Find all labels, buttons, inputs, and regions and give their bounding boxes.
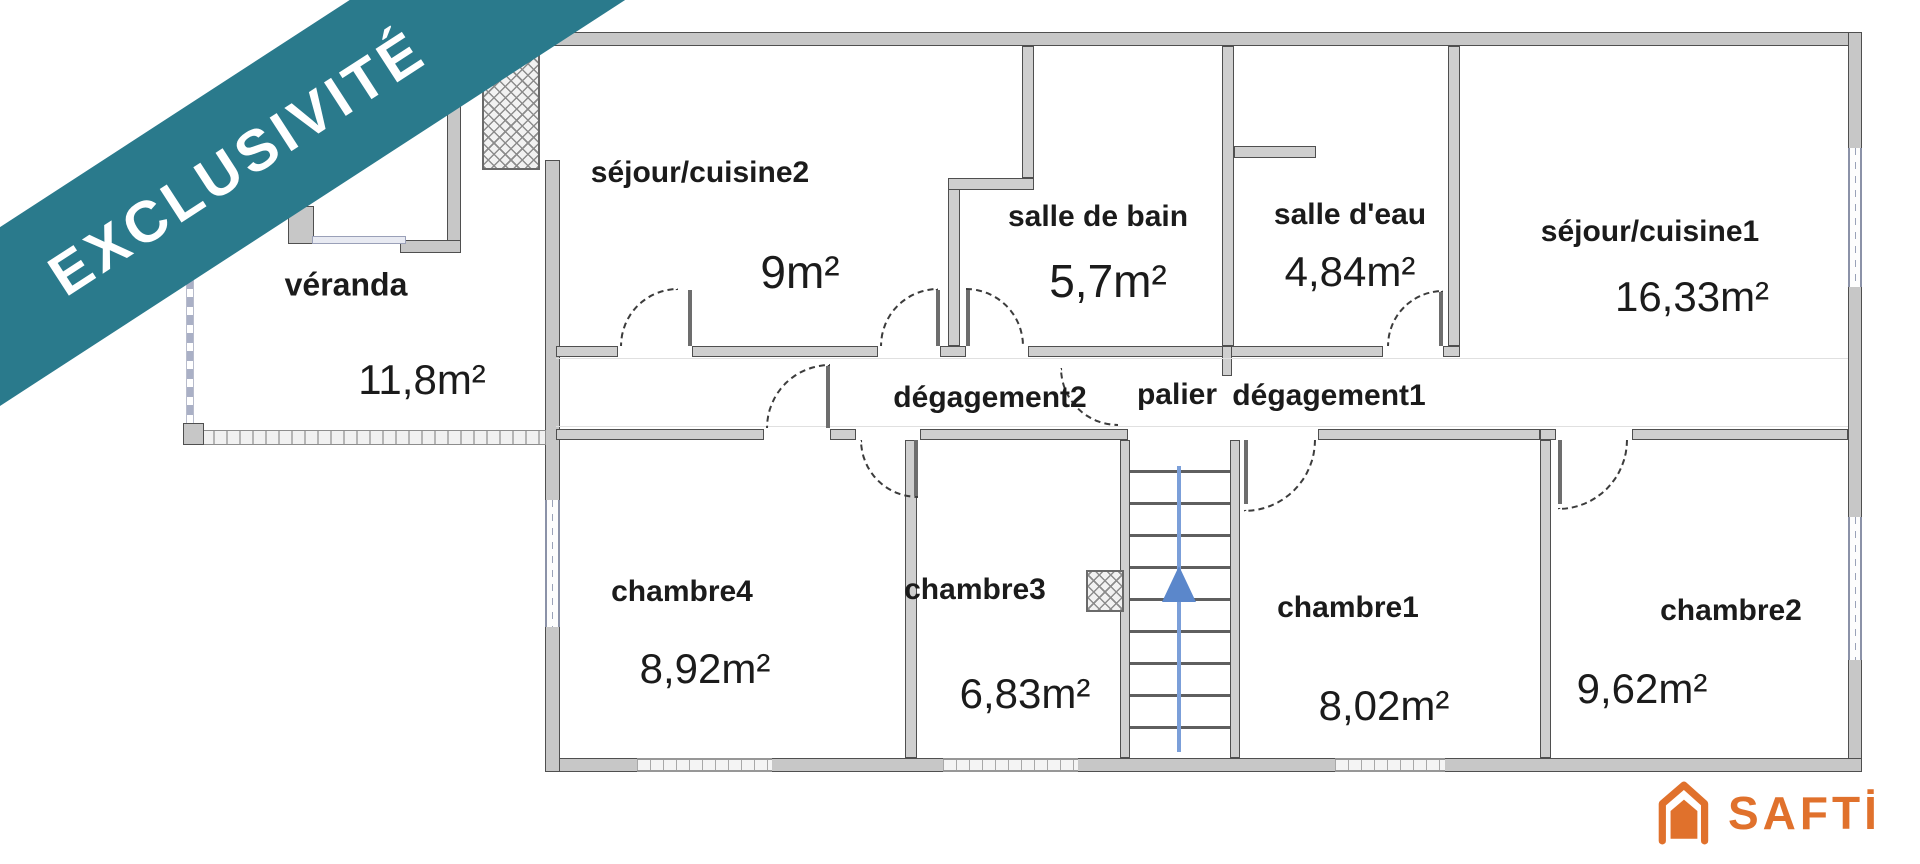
door-arc-chambre1 bbox=[1244, 440, 1316, 512]
room-area-sejour-cuisine2: 9m² bbox=[760, 245, 839, 299]
exclusivity-banner-label: EXCLUSIVITÉ bbox=[36, 16, 438, 309]
wall-corridor-bottom bbox=[1632, 429, 1848, 440]
veranda-wall-top2 bbox=[312, 236, 406, 244]
door-leaf bbox=[826, 366, 830, 428]
window-chambre1-south bbox=[1335, 758, 1445, 772]
room-label-palier: palier bbox=[1137, 378, 1217, 412]
wall-stairs-right bbox=[1230, 440, 1240, 758]
room-label-chambre2: chambre2 bbox=[1660, 594, 1802, 628]
wall-outer-top bbox=[447, 32, 1862, 46]
room-label-sejour-cuisine1: séjour/cuisine1 bbox=[1541, 215, 1759, 249]
window-chambre2 bbox=[1848, 517, 1862, 660]
wall-corridor-top bbox=[556, 346, 618, 357]
veranda-corner-post bbox=[183, 423, 204, 445]
room-area-chambre4: 8,92m² bbox=[640, 645, 771, 693]
wall-outer-west bbox=[545, 160, 560, 772]
wall-corridor-top bbox=[1028, 346, 1383, 357]
niche-hatch bbox=[1086, 570, 1124, 612]
veranda-wall-bottom bbox=[186, 430, 546, 445]
room-area-chambre1: 8,02m² bbox=[1319, 682, 1450, 730]
wall-corridor-top bbox=[1443, 346, 1460, 357]
room-area-chambre2: 9,62m² bbox=[1577, 665, 1708, 713]
wall-palier-stub bbox=[1222, 346, 1232, 376]
door-leaf bbox=[966, 290, 970, 346]
room-label-sejour-cuisine2: séjour/cuisine2 bbox=[591, 156, 809, 190]
wall-sdb-sdeau bbox=[1222, 46, 1234, 346]
door-leaf bbox=[1244, 440, 1248, 504]
window-chambre4-south bbox=[637, 758, 772, 772]
door-arc-salle-deau bbox=[1387, 290, 1443, 346]
room-label-salle-de-bain: salle de bain bbox=[1008, 200, 1188, 234]
room-label-salle-deau: salle d'eau bbox=[1274, 198, 1426, 232]
door-arc-chambre3 bbox=[860, 440, 918, 498]
wall-corridor-bottom bbox=[1318, 429, 1540, 440]
door-leaf bbox=[936, 290, 940, 346]
room-label-chambre3: chambre3 bbox=[904, 573, 1046, 607]
wall-sejour2-sdb bbox=[948, 188, 960, 346]
door-leaf bbox=[914, 440, 918, 496]
safti-logo: SAFTİ bbox=[1652, 780, 1881, 846]
wall-step bbox=[400, 240, 461, 253]
door-leaf bbox=[688, 290, 692, 346]
wall-corridor-bottom bbox=[830, 429, 856, 440]
room-label-degagement1: dégagement1 bbox=[1232, 379, 1425, 413]
room-area-veranda: 11,8m² bbox=[358, 356, 486, 404]
wall-corridor-top bbox=[692, 346, 878, 357]
room-label-chambre1: chambre1 bbox=[1277, 591, 1419, 625]
door-arc-chambre2 bbox=[1558, 440, 1628, 510]
wall-sdeau-sejour1 bbox=[1448, 46, 1460, 346]
door-leaf bbox=[1439, 292, 1443, 346]
room-label-chambre4: chambre4 bbox=[611, 575, 753, 609]
wall-sejour2-sdb-upper bbox=[1022, 46, 1034, 178]
room-label-degagement2: dégagement2 bbox=[893, 381, 1086, 415]
door-arc-chambre4 bbox=[766, 364, 830, 428]
floor-plan: véranda 11,8m² séjour/cuisine2 9m² salle… bbox=[0, 0, 1920, 864]
window-sejour-cuisine1 bbox=[1848, 148, 1862, 287]
wall-sejour2-sdb-jog bbox=[948, 178, 1034, 190]
brand-text: SAFTİ bbox=[1728, 786, 1881, 840]
wall-corridor-bottom bbox=[1540, 429, 1556, 440]
door-arc-sejour2-double bbox=[880, 288, 938, 346]
floor-line bbox=[556, 426, 1848, 427]
room-label-veranda: véranda bbox=[285, 267, 408, 304]
door-arc-salle-de-bain bbox=[966, 288, 1024, 346]
wall-corridor-top bbox=[940, 346, 966, 357]
wall-outer-right bbox=[1848, 32, 1862, 772]
door-arc-sejour2-west bbox=[620, 288, 678, 346]
wall-chambre1-chambre2 bbox=[1540, 440, 1551, 758]
room-area-chambre3: 6,83m² bbox=[960, 670, 1091, 718]
up-arrow-icon bbox=[1162, 566, 1196, 602]
door-leaf bbox=[1558, 440, 1562, 504]
floor-line bbox=[556, 358, 1848, 359]
window-chambre4-west bbox=[545, 500, 560, 627]
room-area-salle-de-bain: 5,7m² bbox=[1049, 254, 1167, 308]
window-chambre3-south bbox=[943, 758, 1078, 772]
wall-sdeau-stub bbox=[1234, 146, 1316, 158]
stair-direction-line bbox=[1177, 466, 1181, 752]
room-area-sejour-cuisine1: 16,33m² bbox=[1615, 273, 1769, 321]
room-area-salle-deau: 4,84m² bbox=[1285, 248, 1416, 296]
wall-corridor-bottom bbox=[920, 429, 1128, 440]
wall-corridor-bottom bbox=[556, 429, 764, 440]
house-icon bbox=[1652, 780, 1718, 846]
